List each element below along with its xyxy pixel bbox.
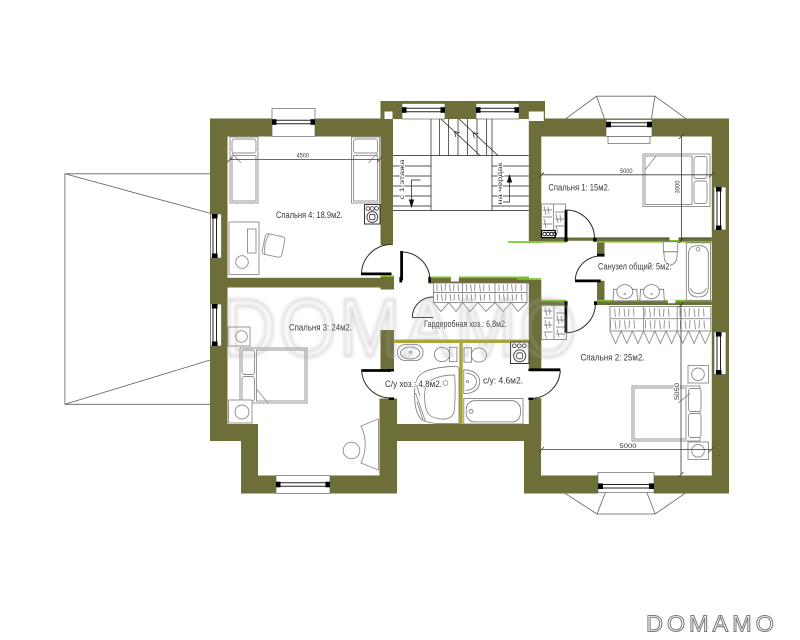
svg-text:на чердак: на чердак <box>498 162 504 205</box>
svg-text:DOMAMO: DOMAMO <box>223 281 579 374</box>
svg-text:4500: 4500 <box>297 153 310 160</box>
svg-text:5050: 5050 <box>674 383 681 400</box>
svg-text:DOMAMO: DOMAMO <box>646 611 778 637</box>
svg-text:5000: 5000 <box>620 168 633 175</box>
svg-text:3000: 3000 <box>675 180 682 193</box>
svg-text:Спальня 1: 15м2.: Спальня 1: 15м2. <box>548 183 610 193</box>
svg-text:Спальня 4: 18,9м2.: Спальня 4: 18,9м2. <box>276 210 343 220</box>
svg-text:с 1 этажа: с 1 этажа <box>400 158 406 199</box>
svg-text:с/у: 4.6м2.: с/у: 4.6м2. <box>483 376 523 386</box>
svg-text:С/у хоз.: 4,8м2.: С/у хоз.: 4,8м2. <box>385 379 442 389</box>
svg-text:Спальня 2: 25м2.: Спальня 2: 25м2. <box>581 353 645 363</box>
svg-text:Санузел общий: 5м2.: Санузел общий: 5м2. <box>598 262 672 272</box>
svg-text:5000: 5000 <box>620 443 637 450</box>
